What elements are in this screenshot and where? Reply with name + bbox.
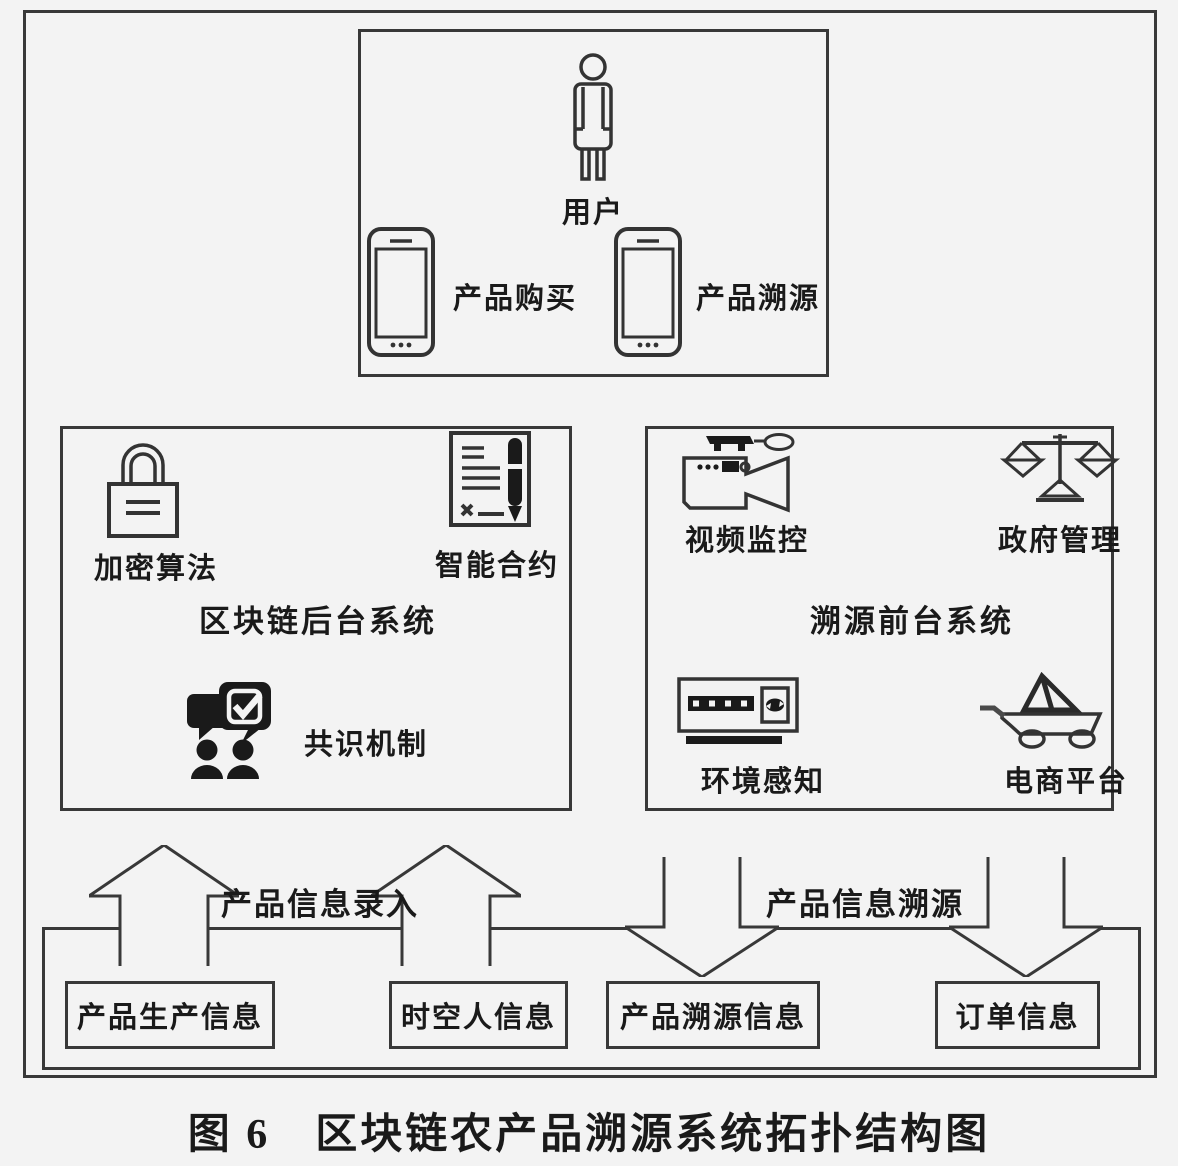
backend-title: 区块链后台系统 [199,596,437,641]
government-label: 政府管理 [998,517,1122,559]
flow-trace-label: 产品信息溯源 [766,879,964,924]
user-label: 用户 [562,189,624,231]
consensus-icon [185,680,287,782]
data-box-traceinfo: 产品溯源信息 [606,981,820,1049]
environment-label: 环境感知 [701,758,825,800]
purchase-label: 产品购买 [453,275,577,317]
scales-icon [1000,430,1120,508]
data-box-order: 订单信息 [935,981,1100,1049]
person-icon [558,53,628,185]
lock-icon [99,434,187,542]
flow-entry-label: 产品信息录入 [221,879,419,924]
encryption-label: 加密算法 [94,545,218,587]
sensor-icon [676,676,800,746]
contract-icon [448,430,532,528]
figure-caption: 图 6 区块链农产品溯源系统拓扑结构图 [0,1100,1178,1161]
phone-purchase-icon [366,226,436,358]
trace-label: 产品溯源 [696,275,820,317]
phone-trace-icon [613,226,683,358]
up-arrow-1 [89,845,239,966]
consensus-label: 共识机制 [304,721,428,763]
video-label: 视频监控 [685,517,809,559]
contract-label: 智能合约 [435,542,559,584]
cart-icon [978,672,1126,750]
down-arrow-2 [949,857,1103,977]
video-camera-icon [676,432,800,514]
down-arrow-1 [625,857,779,977]
ecommerce-label: 电商平台 [1004,758,1128,800]
data-box-spacetime: 时空人信息 [389,981,568,1049]
frontend-title: 溯源前台系统 [810,596,1014,641]
data-box-production: 产品生产信息 [65,981,275,1049]
